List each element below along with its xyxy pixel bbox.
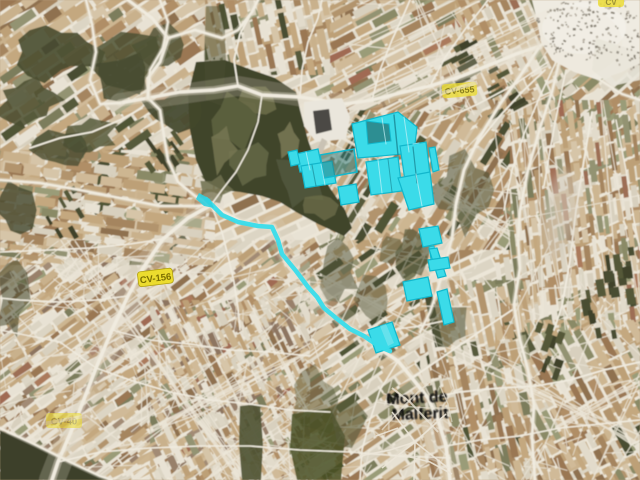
svg-text:CV: CV [605, 0, 617, 7]
